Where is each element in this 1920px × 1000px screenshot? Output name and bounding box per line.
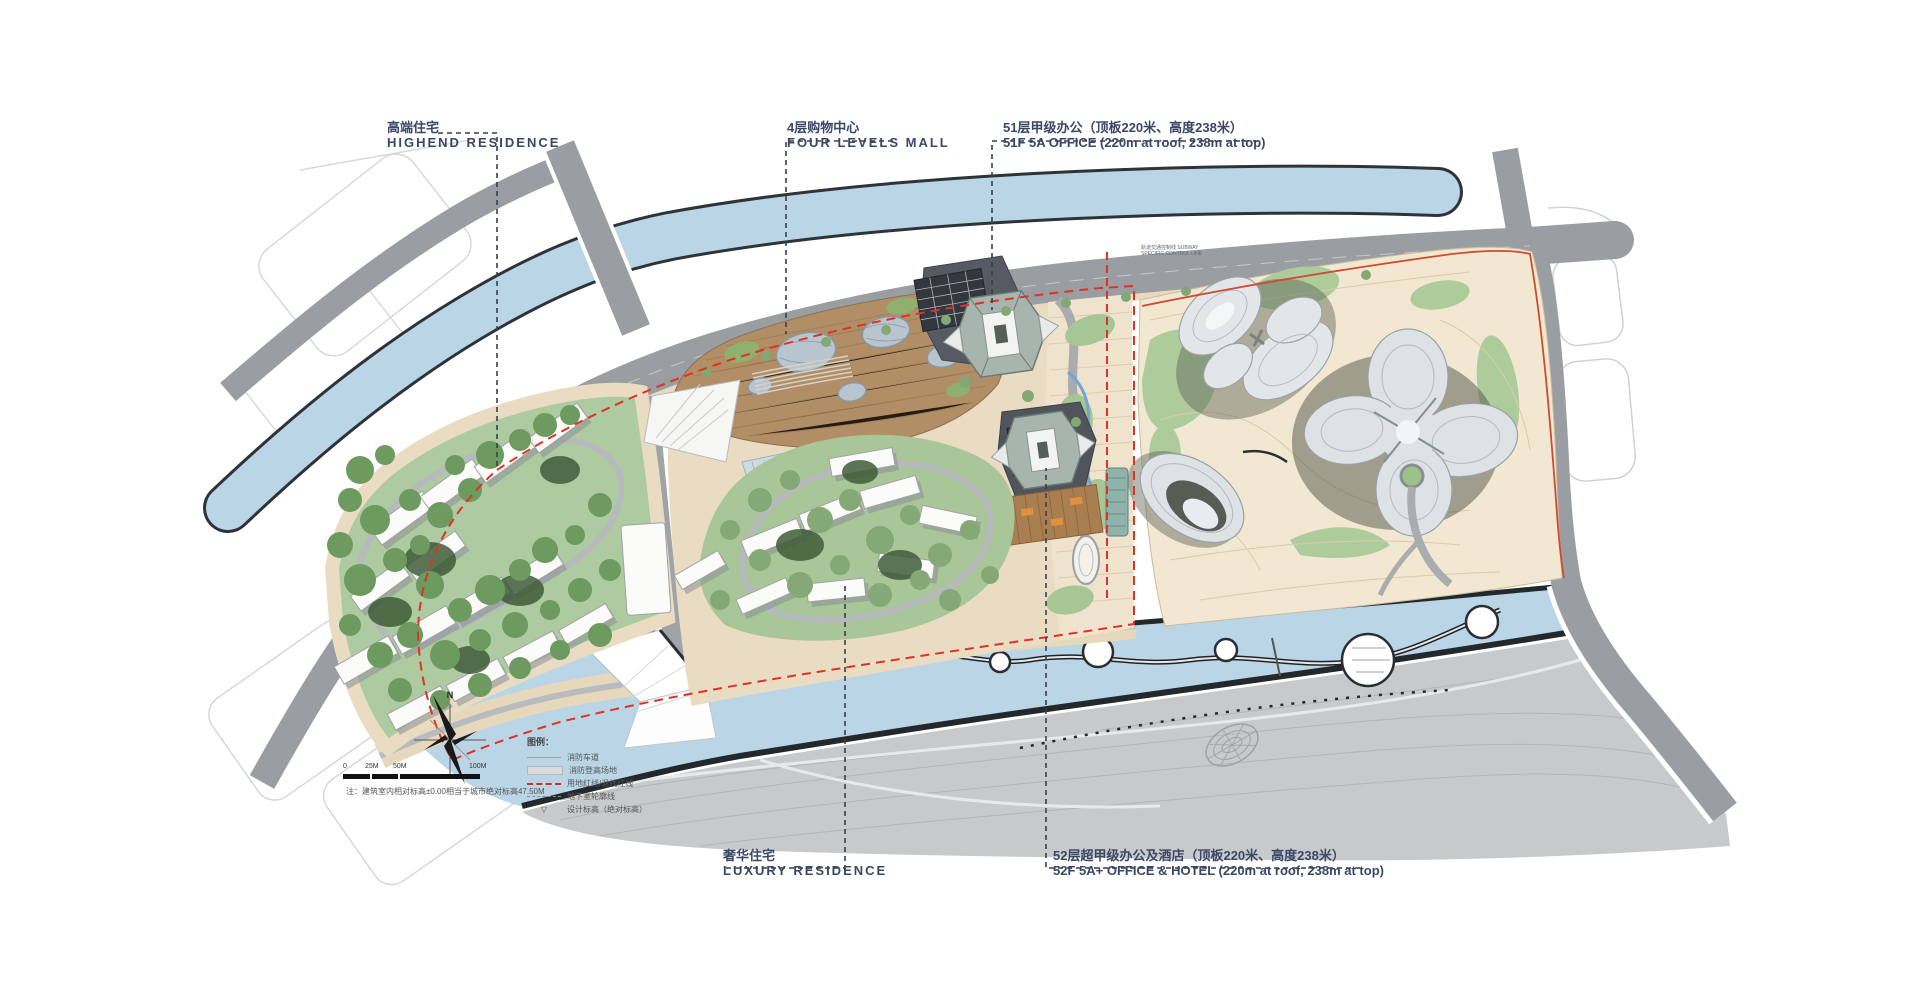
annotation-mall-en: FOUR LEVELS MALL	[787, 135, 950, 150]
annotation-luxury-residence: 奢华住宅 LUXURY RESIDENCE	[723, 848, 887, 878]
annotation-52f-office-hotel: 52层超甲级办公及酒店（顶板220米、高度238米） 52F 5A+ OFFIC…	[1053, 848, 1384, 878]
legend-item-fire-area: 消防登高场地	[527, 765, 697, 776]
annotation-highend-en: HIGHEND RESIDENCE	[387, 135, 560, 150]
legend-swatch-red-dashed	[527, 783, 561, 785]
master-plan-drawing: N 0 25M 50M 100M	[0, 0, 1920, 1000]
annotation-highend-residence: 高端住宅 HIGHEND RESIDENCE	[387, 120, 560, 150]
elevation-marker-icon: ▽	[527, 805, 561, 814]
annotation-luxury-en: LUXURY RESIDENCE	[723, 863, 887, 878]
annotation-four-levels-mall: 4层购物中心 FOUR LEVELS MALL	[787, 120, 950, 150]
legend-title: 图例：	[527, 735, 697, 748]
north-label: N	[447, 690, 454, 700]
annotation-mall-zh: 4层购物中心	[787, 120, 950, 135]
site-plan-canvas: N 0 25M 50M 100M 高端住宅 HIGHEND RESIDENCE …	[0, 0, 1920, 1000]
annotation-highend-zh: 高端住宅	[387, 120, 560, 135]
scale-tick-25: 25M	[365, 763, 379, 770]
scale-tick-100: 100M	[469, 763, 487, 770]
subway-control-note: 轨道交通控制线 SUBWAY SPECIFIC CONTROL LINE	[1141, 245, 1203, 257]
road-north-stub	[1505, 150, 1522, 246]
annotation-52f-en: 52F 5A+ OFFICE & HOTEL (220m at roof, 23…	[1053, 863, 1384, 878]
annotation-52f-zh: 52层超甲级办公及酒店（顶板220米、高度238米）	[1053, 848, 1384, 863]
annotation-51f-en: 51F 5A OFFICE (220m at roof, 238m at top…	[1003, 135, 1265, 150]
elevation-note: 注：建筑室内相对标高±0.00相当于城市绝对标高47.50M	[346, 786, 545, 797]
legend-swatch-gray-line	[527, 757, 561, 758]
legend-item-fire-lane: 消防车道	[527, 752, 697, 763]
legend-item-basement-outline: 地下室轮廓线	[527, 791, 697, 802]
scale-tick-50: 50M	[393, 763, 407, 770]
legend-swatch-gray-fill	[527, 766, 563, 775]
legend-item-red-line: 用地红线/退线红线	[527, 778, 697, 789]
annotation-51f-zh: 51层甲级办公（顶板220米、高度238米）	[1003, 120, 1265, 135]
scale-tick-0: 0	[343, 763, 347, 770]
legend-item-elevation: ▽ 设计标高（绝对标高）	[527, 804, 697, 815]
legend: 图例： 消防车道 消防登高场地 用地红线/退线红线 地下室轮廓线 ▽ 设计标高（…	[527, 735, 697, 817]
annotation-51f-office: 51层甲级办公（顶板220米、高度238米） 51F 5A OFFICE (22…	[1003, 120, 1265, 150]
annotation-luxury-zh: 奢华住宅	[723, 848, 887, 863]
